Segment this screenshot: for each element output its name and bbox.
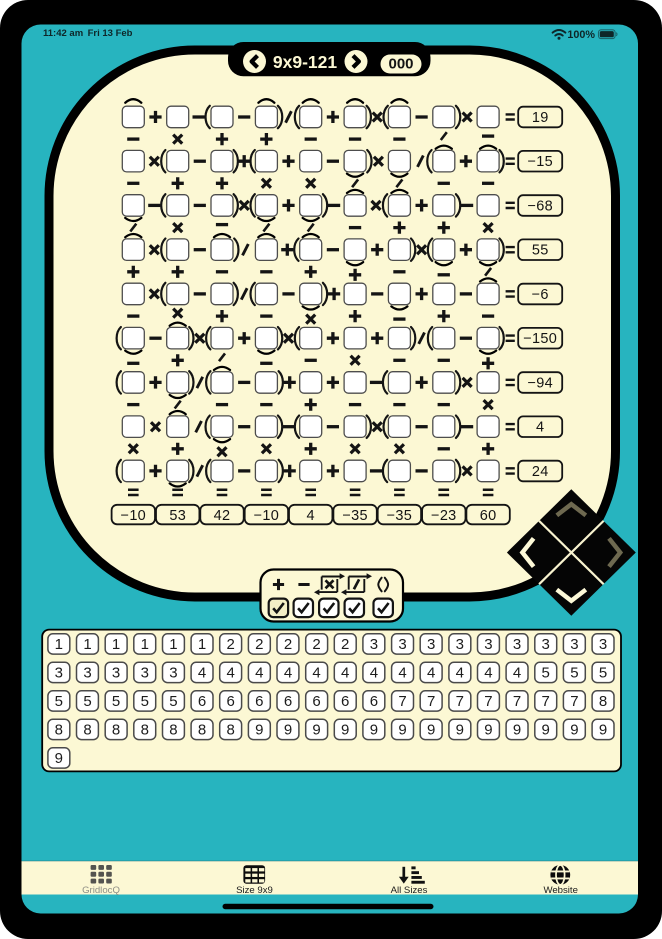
- svg-text:3: 3: [542, 636, 550, 653]
- svg-text:−35: −35: [387, 508, 413, 524]
- svg-text:7: 7: [513, 693, 521, 710]
- svg-text:9: 9: [55, 750, 63, 767]
- svg-text:8: 8: [169, 722, 177, 739]
- svg-text:4: 4: [513, 665, 521, 682]
- svg-text:2: 2: [227, 636, 235, 653]
- svg-text:9: 9: [513, 722, 521, 739]
- svg-text:7: 7: [456, 693, 464, 710]
- svg-text:7: 7: [542, 693, 550, 710]
- svg-text:4: 4: [536, 420, 544, 436]
- svg-text:53: 53: [169, 508, 186, 524]
- svg-text:4: 4: [255, 665, 263, 682]
- svg-text:GridlocQ: GridlocQ: [82, 885, 120, 896]
- svg-text:2: 2: [284, 636, 292, 653]
- svg-text:3: 3: [55, 665, 63, 682]
- svg-text:7: 7: [484, 693, 492, 710]
- svg-text:3: 3: [83, 665, 91, 682]
- svg-text:5: 5: [83, 693, 91, 710]
- svg-text:3: 3: [599, 636, 607, 653]
- svg-text:7: 7: [570, 693, 578, 710]
- svg-text:5: 5: [112, 693, 120, 710]
- svg-text:42: 42: [214, 508, 231, 524]
- svg-text:8: 8: [227, 722, 235, 739]
- svg-text:4: 4: [456, 665, 464, 682]
- svg-text:24: 24: [532, 464, 549, 480]
- svg-text:9: 9: [341, 722, 349, 739]
- svg-text:6: 6: [312, 693, 320, 710]
- svg-text:8: 8: [198, 722, 206, 739]
- svg-text:Size 9x9: Size 9x9: [236, 885, 273, 896]
- svg-text:9: 9: [542, 722, 550, 739]
- svg-text:7: 7: [427, 693, 435, 710]
- svg-text:8: 8: [83, 722, 91, 739]
- svg-text:4: 4: [284, 665, 292, 682]
- svg-text:3: 3: [398, 636, 406, 653]
- svg-text:5: 5: [141, 693, 149, 710]
- svg-text:9: 9: [427, 722, 435, 739]
- svg-text:9: 9: [484, 722, 492, 739]
- svg-text:−10: −10: [254, 508, 280, 524]
- svg-text:4: 4: [427, 665, 435, 682]
- svg-text:Fri 13 Feb: Fri 13 Feb: [88, 28, 133, 39]
- svg-text:4: 4: [341, 665, 349, 682]
- svg-text:5: 5: [542, 665, 550, 682]
- svg-text:9: 9: [370, 722, 378, 739]
- svg-text:3: 3: [112, 665, 120, 682]
- svg-text:2: 2: [255, 636, 263, 653]
- svg-text:6: 6: [255, 693, 263, 710]
- svg-text:4: 4: [484, 665, 492, 682]
- svg-text:9: 9: [398, 722, 406, 739]
- svg-text:2: 2: [341, 636, 349, 653]
- svg-text:3: 3: [169, 665, 177, 682]
- svg-text:000: 000: [388, 56, 413, 73]
- svg-text:3: 3: [427, 636, 435, 653]
- svg-text:9: 9: [255, 722, 263, 739]
- svg-text:−150: −150: [523, 331, 557, 347]
- svg-text:5: 5: [599, 665, 607, 682]
- svg-text:1: 1: [141, 636, 149, 653]
- svg-text:5: 5: [169, 693, 177, 710]
- svg-text:3: 3: [484, 636, 492, 653]
- svg-text:All Sizes: All Sizes: [391, 885, 428, 896]
- svg-text:8: 8: [112, 722, 120, 739]
- svg-text:3: 3: [370, 636, 378, 653]
- svg-text:8: 8: [55, 722, 63, 739]
- svg-text:1: 1: [83, 636, 91, 653]
- svg-text:6: 6: [341, 693, 349, 710]
- svg-text:9: 9: [570, 722, 578, 739]
- svg-text:3: 3: [570, 636, 578, 653]
- svg-text:1: 1: [169, 636, 177, 653]
- svg-text:−6: −6: [532, 287, 549, 303]
- svg-text:9: 9: [599, 722, 607, 739]
- svg-text:3: 3: [456, 636, 464, 653]
- svg-text:100%: 100%: [567, 29, 595, 41]
- svg-text:−68: −68: [527, 198, 553, 214]
- svg-text:1: 1: [112, 636, 120, 653]
- svg-text:4: 4: [370, 665, 378, 682]
- svg-text:60: 60: [480, 508, 497, 524]
- svg-text:19: 19: [532, 110, 549, 126]
- svg-text:4: 4: [198, 665, 206, 682]
- svg-text:6: 6: [198, 693, 206, 710]
- svg-text:3: 3: [513, 636, 521, 653]
- svg-text:11:42 am: 11:42 am: [43, 28, 83, 39]
- svg-text:9: 9: [456, 722, 464, 739]
- svg-text:2: 2: [312, 636, 320, 653]
- svg-text:−94: −94: [527, 375, 553, 391]
- svg-text:55: 55: [532, 243, 549, 259]
- svg-text:−15: −15: [527, 154, 553, 170]
- svg-text:4: 4: [307, 508, 315, 524]
- svg-text:6: 6: [370, 693, 378, 710]
- svg-text:5: 5: [55, 693, 63, 710]
- svg-text:−10: −10: [121, 508, 147, 524]
- svg-text:Website: Website: [543, 885, 577, 896]
- svg-text:9x9-121: 9x9-121: [273, 52, 337, 72]
- svg-text:3: 3: [141, 665, 149, 682]
- svg-text:9: 9: [312, 722, 320, 739]
- svg-text:4: 4: [312, 665, 320, 682]
- svg-text:−35: −35: [342, 508, 368, 524]
- svg-text:1: 1: [55, 636, 63, 653]
- svg-text:4: 4: [227, 665, 235, 682]
- svg-text:8: 8: [599, 693, 607, 710]
- svg-text:8: 8: [141, 722, 149, 739]
- svg-text:4: 4: [398, 665, 406, 682]
- svg-text:6: 6: [227, 693, 235, 710]
- svg-text:9: 9: [284, 722, 292, 739]
- svg-text:1: 1: [198, 636, 206, 653]
- svg-text:7: 7: [398, 693, 406, 710]
- svg-text:5: 5: [570, 665, 578, 682]
- svg-text:−23: −23: [431, 508, 457, 524]
- svg-text:6: 6: [284, 693, 292, 710]
